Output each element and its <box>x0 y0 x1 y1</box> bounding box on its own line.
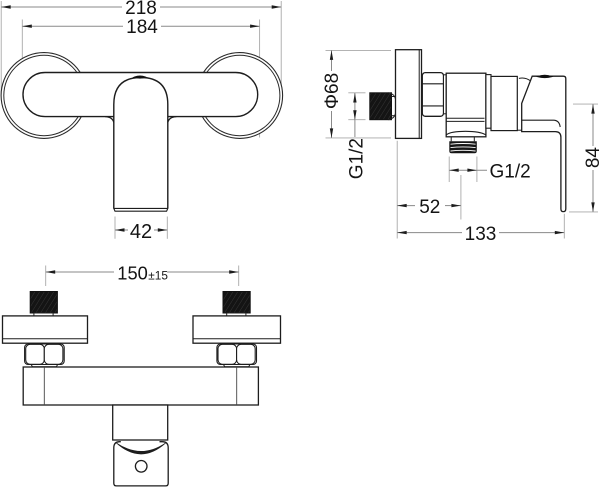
svg-text:133: 133 <box>465 224 497 245</box>
svg-text:Φ68: Φ68 <box>322 73 343 109</box>
svg-text:42: 42 <box>130 221 152 243</box>
svg-text:G1/2: G1/2 <box>490 162 531 183</box>
svg-text:G1/2: G1/2 <box>347 138 368 179</box>
svg-text:±15: ±15 <box>148 268 168 282</box>
svg-text:84: 84 <box>583 147 600 169</box>
svg-text:218: 218 <box>125 0 157 19</box>
svg-text:150: 150 <box>117 263 148 284</box>
svg-text:52: 52 <box>419 197 440 218</box>
svg-text:184: 184 <box>126 17 158 38</box>
